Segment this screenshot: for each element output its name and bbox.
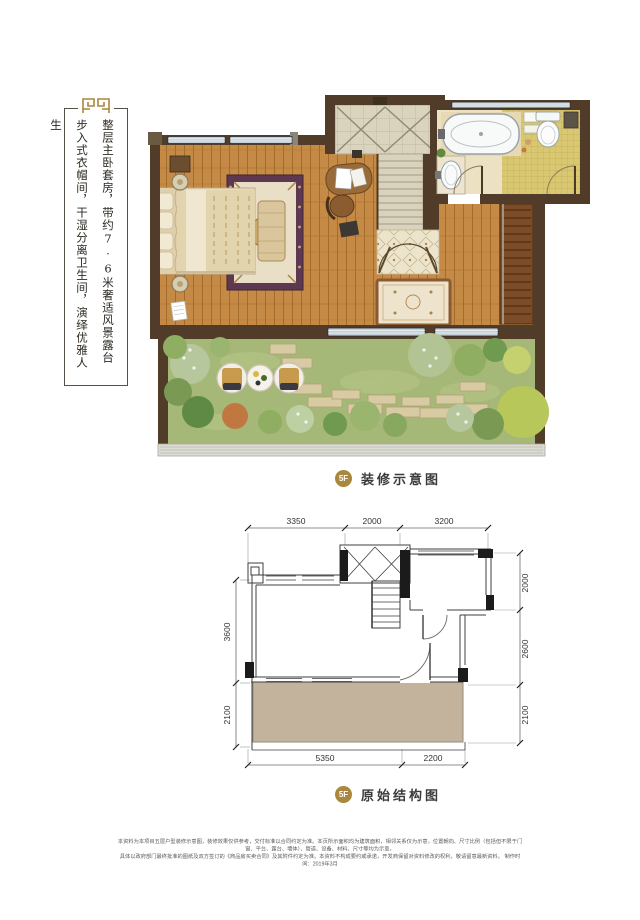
- magazine: [171, 301, 187, 321]
- deco-plan-title: 装修示意图: [361, 469, 441, 488]
- nightstand: [170, 156, 190, 172]
- disclaimer-line-2: 具体以政府部门最终批准的图纸及双方签订的《商品房买卖合同》及其附件约定为准。本资…: [115, 853, 525, 868]
- writing-desk: [324, 162, 373, 197]
- dim-top-1: 3350: [287, 516, 306, 526]
- dim-right-1: 2000: [520, 573, 530, 592]
- vanity-sink: [435, 156, 465, 194]
- hall-rug: [377, 280, 450, 325]
- structural-columns: [245, 549, 494, 682]
- wall-switch: [352, 150, 362, 158]
- terrace-railing: [158, 444, 545, 456]
- garden-table: [247, 365, 273, 391]
- bath-cabinet: [564, 112, 578, 128]
- toilet-icon: [536, 112, 560, 147]
- deco-plan-label: 5F 装修示意图: [335, 469, 441, 488]
- stair-landing: [335, 105, 439, 154]
- structural-doors: [400, 615, 447, 680]
- floor-badge: 5F: [335, 786, 352, 803]
- marble-vestibule: [377, 230, 439, 274]
- bathroom: [435, 110, 580, 194]
- bed-bench: [258, 201, 285, 261]
- brochure-page: 整层主卧套房，带约7·6米奢适风景露台 步入式衣帽间，干湿分离卫生间，演绎优雅人…: [0, 0, 640, 920]
- struct-plan-label: 5F 原始结构图: [335, 785, 441, 804]
- structural-windows: [266, 551, 474, 682]
- structural-stair: [372, 581, 400, 628]
- plant-icon: [437, 149, 446, 158]
- decorated-floor-plan: [130, 92, 600, 457]
- dim-right-3: 2100: [520, 705, 530, 724]
- disclaimer: 本资料为本项目五层户型装修示意图，装修效果仅供参考，交付标准以合同约定为准。本页…: [115, 838, 525, 868]
- bathtub-icon: [438, 114, 519, 154]
- structural-floor-plan: 3350 2000 3200 2000 2600 2100 3600 2100 …: [222, 503, 544, 793]
- intro-text: 整层主卧套房，带约7·6米奢适风景露台 步入式衣帽间，干湿分离卫生间，演绎优雅人…: [71, 119, 121, 377]
- terrace-garden: [158, 333, 549, 456]
- dim-bottom-1: 5350: [316, 753, 335, 763]
- dim-bottom-2: 2200: [424, 753, 443, 763]
- fret-ornament-icon: [78, 97, 114, 115]
- dim-left-1: 3600: [222, 622, 232, 641]
- bathroom-window: [452, 102, 570, 108]
- walk-in-closet: [500, 204, 533, 324]
- bedroom-window: [168, 137, 292, 144]
- staircase: [377, 154, 423, 230]
- bath-accessory: [522, 148, 527, 153]
- dim-top-2: 2000: [363, 516, 382, 526]
- intro-line-1: 整层主卧套房，带约7·6米奢适风景露台: [95, 119, 121, 377]
- dim-right-2: 2600: [520, 639, 530, 658]
- bath-accessory: [525, 139, 531, 145]
- terrace-window: [328, 328, 498, 336]
- struct-plan-title: 原始结构图: [361, 785, 441, 804]
- dim-top-3: 3200: [435, 516, 454, 526]
- bed: [155, 188, 255, 274]
- structural-terrace: [253, 682, 463, 742]
- dim-left-2: 2100: [222, 705, 232, 724]
- intro-text-box: 整层主卧套房，带约7·6米奢适风景露台 步入式衣帽间，干湿分离卫生间，演绎优雅人…: [64, 108, 128, 386]
- intro-line-2: 步入式衣帽间，干湿分离卫生间，演绎优雅人生: [43, 119, 95, 377]
- floor-badge: 5F: [335, 470, 352, 487]
- disclaimer-line-1: 本资料为本项目五层户型装修示意图，装修效果仅供参考，交付标准以合同约定为准。本页…: [115, 838, 525, 853]
